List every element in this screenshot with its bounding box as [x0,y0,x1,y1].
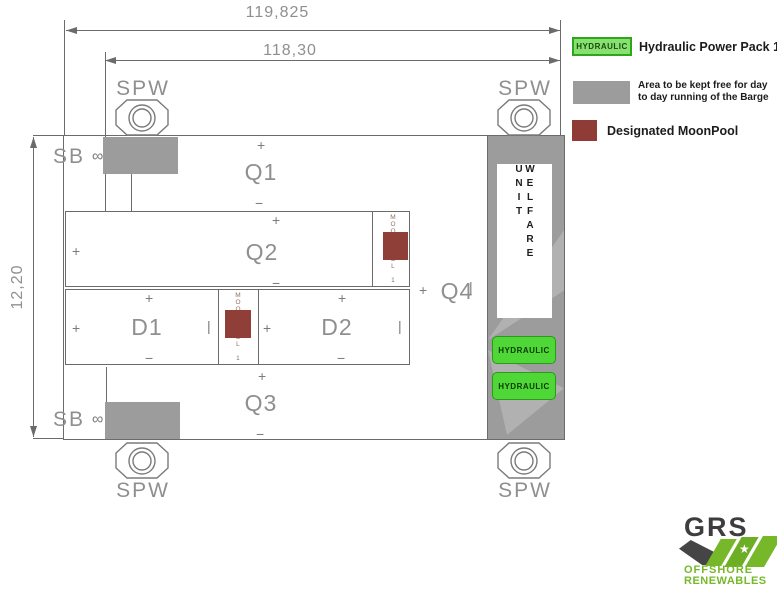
hydraulic-power-pack-1: HYDRAULIC [492,336,556,364]
mark-q2-left-plus: + [72,244,80,258]
legend-free-area-line1: Area to be kept free for day [638,80,769,92]
mark-q3-plus: + [258,369,266,383]
zone-label-d2: D2 [311,314,363,341]
legend-hydraulic-swatch: HYDRAULIC [572,37,632,56]
welfare-unit-box: WELFARE UNIT [497,164,552,318]
winch-icon-bottom-right [494,440,554,481]
mark-d2-left-plus: + [263,321,271,335]
moonpool-2-square [225,310,251,338]
winch-icon-bottom-left [112,440,172,481]
mark-d1-minus: − [145,351,153,365]
mark-d2-plus: + [338,291,346,305]
sb-label-bottom: SB [53,408,85,432]
legend-free-area-line2: to day running of the Barge [638,92,769,104]
legend-hydraulic-label: Hydraulic Power Pack 1 + 2 [639,40,777,54]
dim-beam: 12,20 [9,247,27,327]
legend-moonpool-swatch [572,120,597,141]
moonpool-1-square [383,232,408,260]
spw-label-bottom-right: SPW [496,479,554,503]
mark-q1-minus: − [255,196,263,210]
mark-d1-left-plus: + [72,321,80,335]
welfare-unit-label: WELFARE UNIT [514,164,536,318]
spw-label-top-right: SPW [496,77,554,101]
mark-q2-plus: + [272,213,280,227]
mark-q2-minus: − [272,276,280,290]
winch-icon-top-left [112,97,172,138]
free-area-bottom-left [105,402,180,439]
mark-q4-tick: | [469,280,473,294]
legend-free-area-swatch [573,81,630,104]
mark-q4-plus: + [419,283,427,297]
legend-free-area-label: Area to be kept free for day to day runn… [638,80,769,103]
dim-overall-length: 119,825 [220,4,335,22]
mark-q1-plus: + [257,138,265,152]
dim-inner-length: 118,30 [240,42,340,60]
mooring-symbol-icon: ∞ [92,412,103,428]
mooring-symbol-icon: ∞ [92,149,103,165]
mark-d1-tick: | [207,319,211,333]
winch-icon-top-right [494,97,554,138]
spw-label-top-left: SPW [114,77,172,101]
mark-d2-minus: − [337,351,345,365]
zone-label-d1: D1 [121,314,173,341]
mark-d2-tick: | [398,319,402,333]
grs-logo-renewables: RENEWABLES [684,575,767,587]
zone-label-q3: Q3 [235,390,287,417]
mark-q3-minus: − [256,427,264,441]
zone-label-q1: Q1 [235,159,287,186]
zone-label-q2: Q2 [236,239,288,266]
sb-label-top: SB [53,145,85,169]
zone-label-q4: Q4 [431,278,483,305]
barge-deck-layout-drawing: 119,825 118,30 12,20 WELFARE UNIT HYDRAU… [0,0,777,600]
star-icon: ★ [739,543,750,555]
spw-label-bottom-left: SPW [114,479,172,503]
hydraulic-power-pack-2: HYDRAULIC [492,372,556,400]
grs-logo-swoosh-icon: ★ [679,536,775,567]
free-area-top-left [103,137,178,174]
legend-moonpool-label: Designated MoonPool [607,124,738,138]
mark-d1-plus: + [145,291,153,305]
